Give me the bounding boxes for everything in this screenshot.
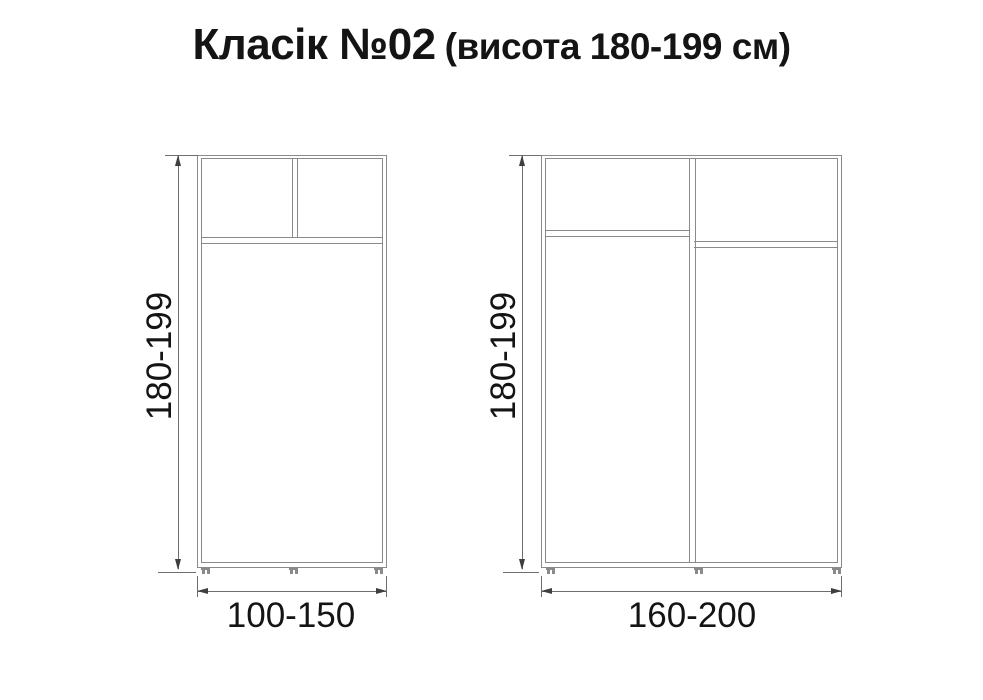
dimension-arrow-right-icon (831, 588, 842, 594)
width-dimension-label: 160-200 (628, 596, 756, 636)
extension-line-bottom (503, 572, 539, 573)
wardrobe-small-shelf (201, 237, 383, 244)
wardrobe-large-middle-divider (689, 158, 696, 562)
extension-line-top (509, 155, 541, 156)
wardrobe-foot (546, 568, 555, 570)
dimension-arrow-up-icon (175, 155, 181, 166)
dimension-arrow-up-icon (519, 155, 525, 166)
width-dimension-line (541, 591, 842, 592)
page-title: Класік №02(висота 180-199 см) (0, 20, 983, 80)
width-dimension-label: 100-150 (227, 596, 355, 636)
wardrobe-small (197, 155, 387, 568)
width-dimension-line (197, 591, 387, 592)
extension-line-top (165, 155, 198, 156)
diagram-canvas: Класік №02(висота 180-199 см) 180-199 10… (0, 0, 983, 700)
height-dimension-label: 180-199 (140, 292, 180, 420)
wardrobe-foot (374, 568, 383, 570)
wardrobe-foot (694, 568, 703, 570)
wardrobe-foot (289, 568, 298, 570)
height-dimension-label: 180-199 (484, 292, 524, 420)
extension-line-bottom (158, 572, 196, 573)
dimension-arrow-left-icon (541, 588, 552, 594)
dimension-arrow-left-icon (197, 588, 208, 594)
wardrobe-small-top-divider (292, 158, 298, 237)
dimension-arrow-down-icon (175, 559, 181, 570)
wardrobe-large (541, 155, 842, 568)
wardrobe-large-right-shelf (694, 241, 838, 248)
wardrobe-foot (832, 568, 841, 570)
title-sub: (висота 180-199 см) (445, 26, 791, 67)
dimension-arrow-down-icon (519, 559, 525, 570)
title-main: Класік №02 (192, 20, 435, 69)
dimension-arrow-right-icon (376, 588, 387, 594)
wardrobe-foot (201, 568, 210, 570)
wardrobe-large-left-shelf (545, 230, 689, 237)
